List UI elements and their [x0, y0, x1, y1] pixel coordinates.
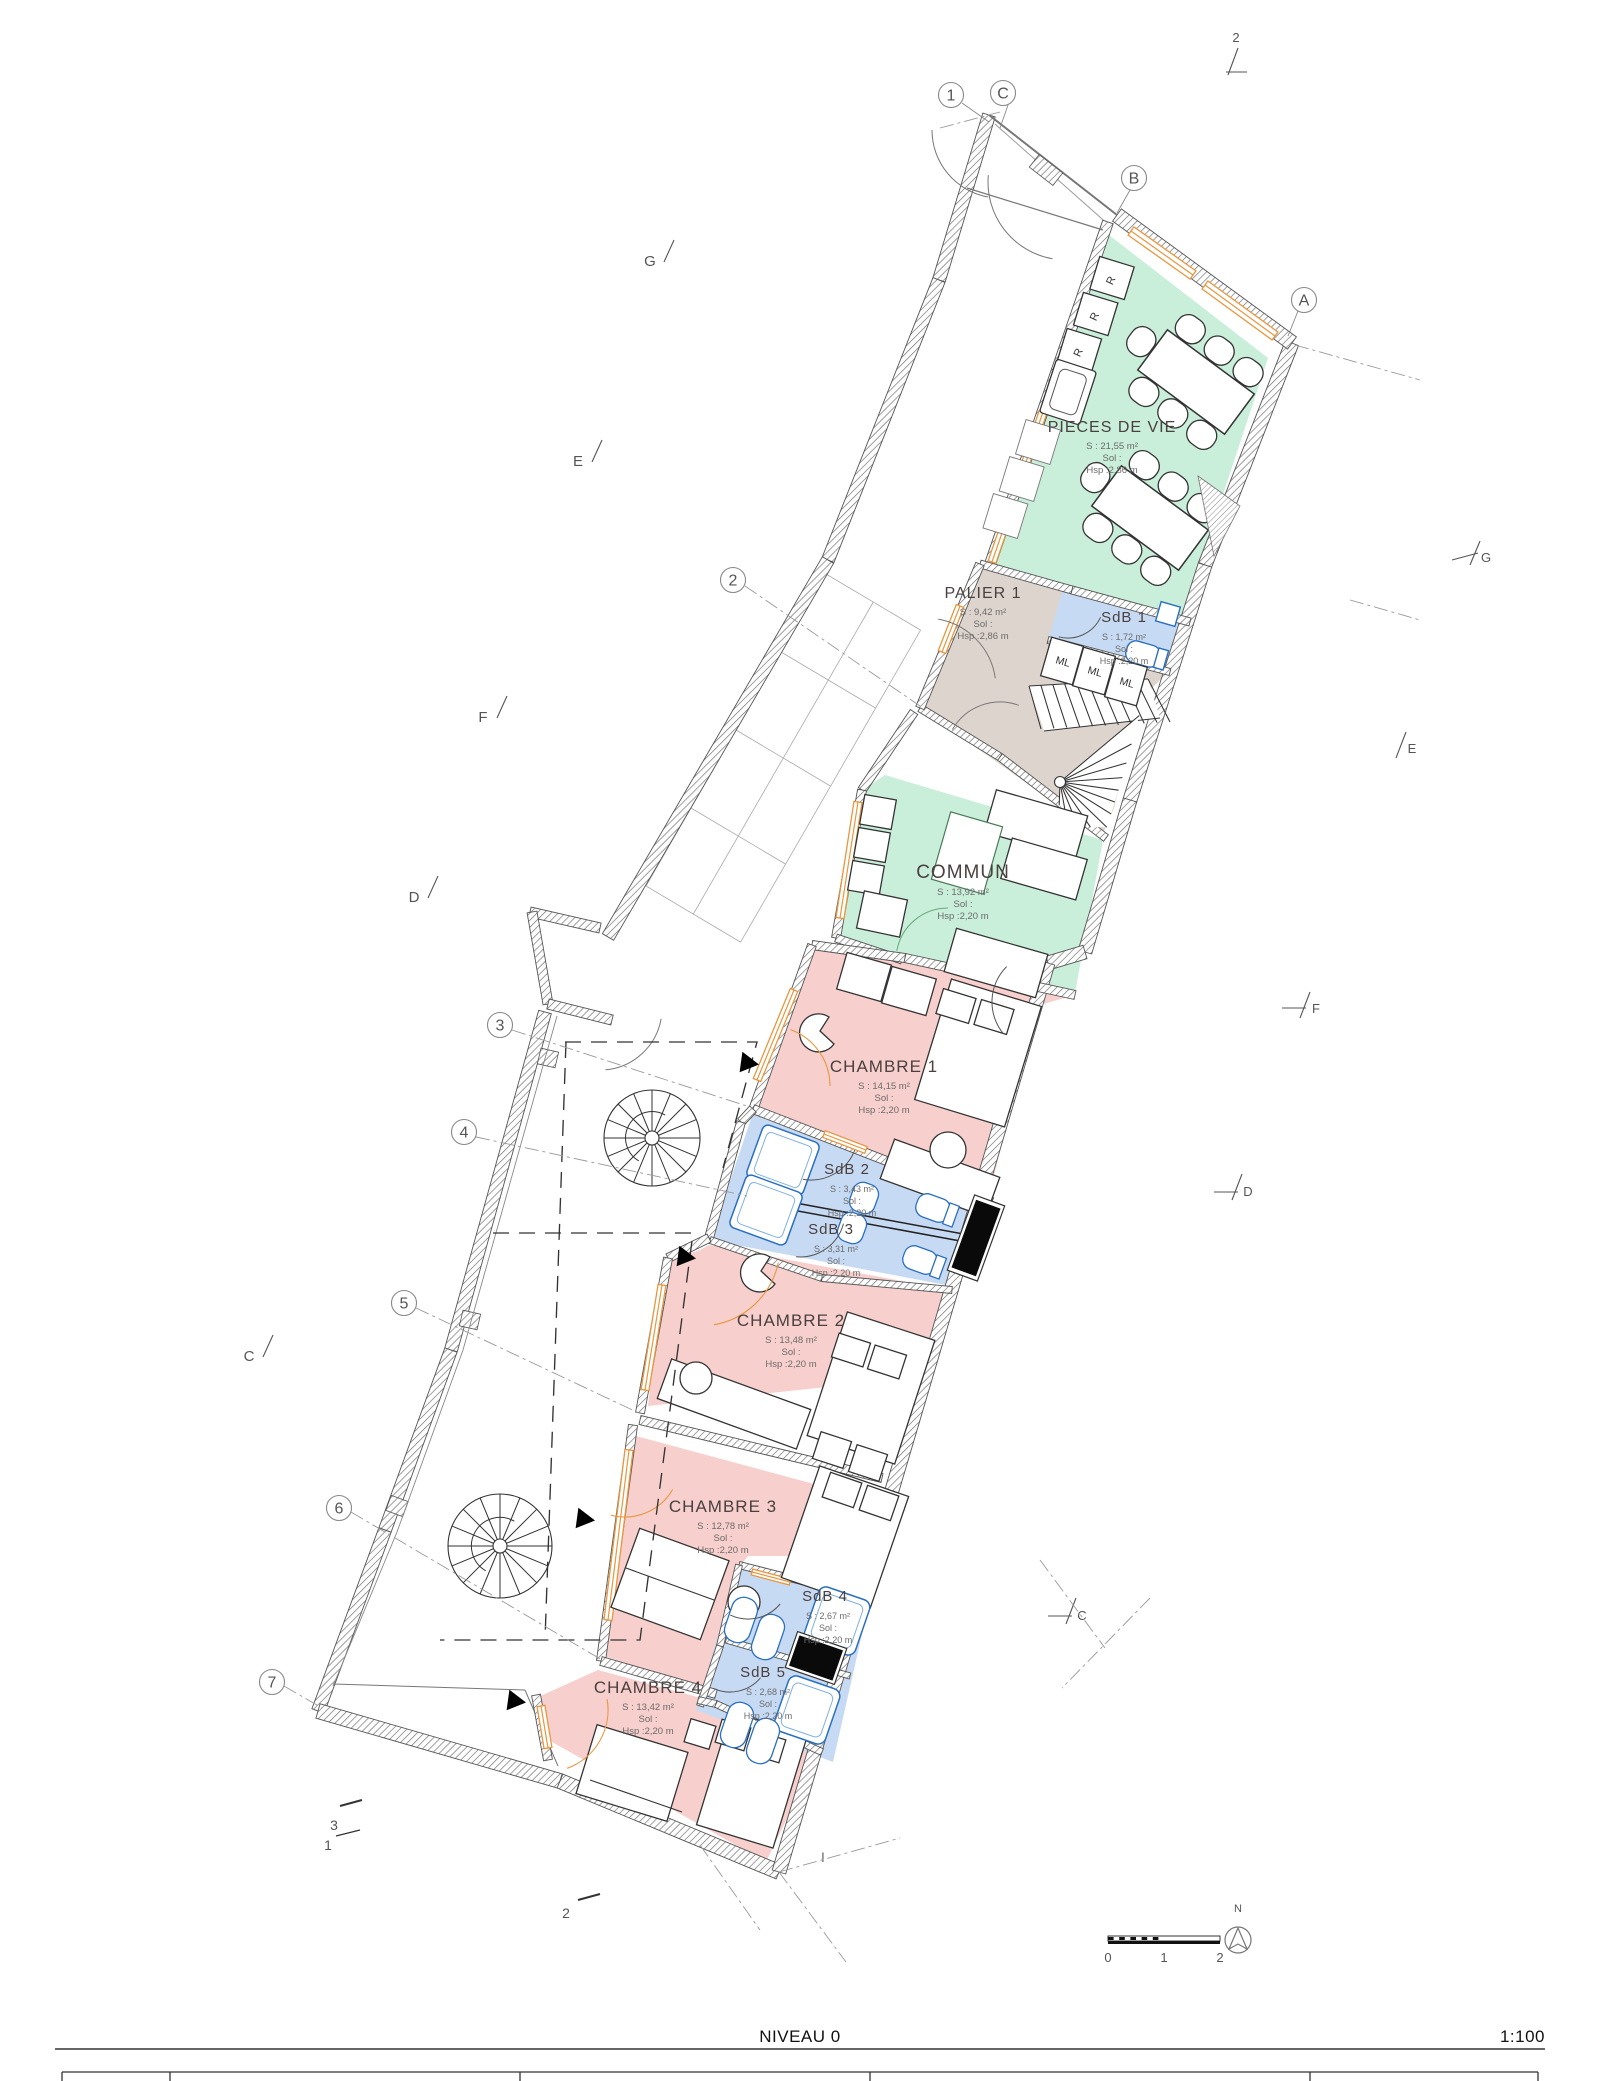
svg-text:0: 0 — [1104, 1950, 1111, 1965]
svg-text:F: F — [478, 709, 487, 726]
svg-text:S : 9,42 m²: S : 9,42 m² — [960, 607, 1006, 618]
svg-text:l: l — [822, 1850, 825, 1865]
svg-text:Hsp :2,20 m: Hsp :2,20 m — [937, 911, 988, 922]
svg-text:Sol :: Sol : — [874, 1093, 893, 1104]
svg-text:S : 3,31 m²: S : 3,31 m² — [814, 1244, 858, 1254]
svg-text:Hsp :2,20 m: Hsp :2,20 m — [858, 1105, 909, 1116]
svg-text:1: 1 — [947, 88, 956, 105]
svg-text:CHAMBRE 3: CHAMBRE 3 — [669, 1497, 777, 1516]
svg-text:CHAMBRE 4: CHAMBRE 4 — [594, 1678, 702, 1697]
svg-text:S : 1,72 m²: S : 1,72 m² — [1102, 632, 1146, 642]
svg-text:Sol :: Sol : — [713, 1533, 732, 1544]
svg-text:2: 2 — [729, 573, 738, 590]
svg-text:D: D — [1243, 1184, 1252, 1199]
svg-text:3: 3 — [496, 1018, 505, 1035]
svg-text:Hsp :2,86 m: Hsp :2,86 m — [957, 631, 1008, 642]
svg-text:Hsp :2,20 m: Hsp :2,20 m — [622, 1726, 673, 1737]
svg-text:COMMUN: COMMUN — [916, 862, 1010, 883]
svg-text:Sol :: Sol : — [781, 1347, 800, 1358]
svg-text:S : 12,78 m²: S : 12,78 m² — [697, 1521, 749, 1532]
svg-text:Sol :: Sol : — [638, 1714, 657, 1725]
svg-text:C: C — [244, 1348, 255, 1365]
svg-text:N: N — [1234, 1903, 1242, 1915]
svg-text:S : 13,48 m²: S : 13,48 m² — [765, 1335, 817, 1346]
svg-text:Hsp :2,86 m: Hsp :2,86 m — [1086, 465, 1137, 476]
svg-text:C: C — [997, 86, 1009, 103]
svg-text:G: G — [644, 253, 656, 270]
svg-text:E: E — [1408, 741, 1417, 756]
svg-text:Sol :: Sol : — [973, 619, 992, 630]
svg-text:3: 3 — [330, 1817, 338, 1833]
svg-text:SdB 1: SdB 1 — [1101, 609, 1147, 626]
svg-text:2: 2 — [562, 1905, 570, 1921]
svg-text:S : 14,15 m²: S : 14,15 m² — [858, 1081, 910, 1092]
svg-text:5: 5 — [400, 1296, 409, 1313]
svg-text:SdB 4: SdB 4 — [802, 1588, 848, 1605]
svg-text:E: E — [573, 453, 583, 470]
svg-text:CHAMBRE 1: CHAMBRE 1 — [830, 1057, 938, 1076]
svg-text:PALIER 1: PALIER 1 — [944, 585, 1021, 602]
svg-text:B: B — [1129, 171, 1140, 188]
svg-text:4: 4 — [460, 1125, 469, 1142]
svg-text:S : 13,42 m²: S : 13,42 m² — [622, 1702, 674, 1713]
svg-text:A: A — [1299, 293, 1310, 310]
svg-text:Sol :: Sol : — [843, 1196, 861, 1206]
svg-text:Sol :: Sol : — [759, 1699, 777, 1709]
svg-text:Hsp :2,20 m: Hsp :2,20 m — [744, 1711, 793, 1721]
svg-text:F: F — [1312, 1001, 1320, 1016]
svg-text:NIVEAU 0: NIVEAU 0 — [759, 2027, 840, 2046]
svg-text:SdB 2: SdB 2 — [824, 1161, 870, 1178]
svg-text:Hsp :2,20 m: Hsp :2,20 m — [804, 1635, 853, 1645]
svg-text:Hsp :2,20 m: Hsp :2,20 m — [765, 1359, 816, 1370]
svg-text:2: 2 — [1232, 30, 1239, 45]
svg-text:2: 2 — [1216, 1950, 1223, 1965]
svg-text:S : 13,92 m²: S : 13,92 m² — [937, 887, 989, 898]
svg-text:Sol :: Sol : — [1115, 644, 1133, 654]
svg-text:CHAMBRE 2: CHAMBRE 2 — [737, 1311, 845, 1330]
svg-text:Sol :: Sol : — [1102, 453, 1121, 464]
svg-text:S : 3,43 m²: S : 3,43 m² — [830, 1184, 874, 1194]
svg-text:Sol :: Sol : — [953, 899, 972, 910]
svg-text:Sol :: Sol : — [827, 1256, 845, 1266]
svg-text:Hsp :2,20 m: Hsp :2,20 m — [1100, 656, 1149, 666]
svg-text:SdB 3: SdB 3 — [808, 1221, 854, 1238]
svg-text:S : 21,55 m²: S : 21,55 m² — [1086, 441, 1138, 452]
svg-text:S : 2,68 m²: S : 2,68 m² — [746, 1687, 790, 1697]
svg-text:6: 6 — [335, 1501, 344, 1518]
svg-text:G: G — [1481, 550, 1491, 565]
svg-text:SdB 5: SdB 5 — [740, 1664, 786, 1681]
svg-text:D: D — [409, 889, 420, 906]
svg-text:PIECES DE VIE: PIECES DE VIE — [1048, 419, 1177, 436]
svg-text:Hsp :2,20 m: Hsp :2,20 m — [812, 1268, 861, 1278]
svg-text:S : 2,67 m²: S : 2,67 m² — [806, 1611, 850, 1621]
svg-text:1: 1 — [1160, 1950, 1167, 1965]
svg-text:Hsp :2,20 m: Hsp :2,20 m — [828, 1208, 877, 1218]
svg-text:7: 7 — [268, 1675, 277, 1692]
svg-text:1: 1 — [324, 1837, 332, 1853]
svg-text:1:100: 1:100 — [1500, 2027, 1545, 2046]
svg-text:Sol :: Sol : — [819, 1623, 837, 1633]
svg-text:Hsp :2,20 m: Hsp :2,20 m — [697, 1545, 748, 1556]
